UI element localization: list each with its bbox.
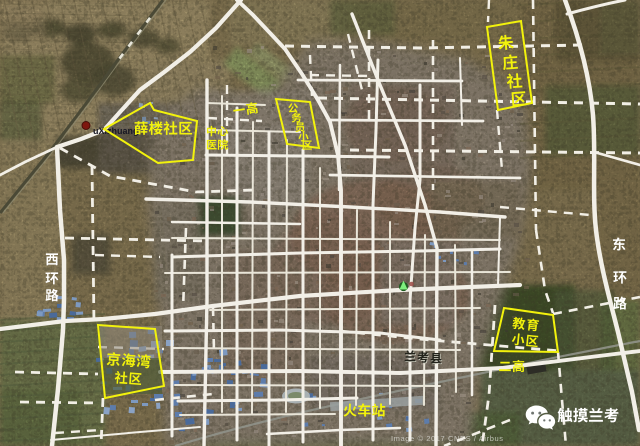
- svg-text:uXizhuang: uXizhuang: [93, 126, 139, 136]
- svg-text:Image © 2017 CNES / Airbus: Image © 2017 CNES / Airbus: [391, 434, 503, 443]
